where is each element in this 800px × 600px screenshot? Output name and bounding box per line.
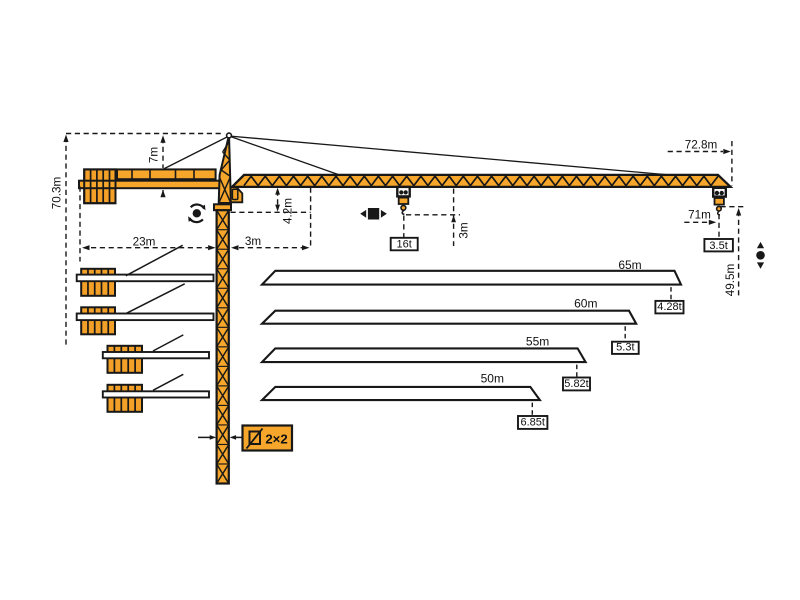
svg-text:3m: 3m (458, 222, 471, 238)
svg-text:4.28t: 4.28t (657, 301, 681, 313)
svg-text:71m: 71m (688, 209, 711, 222)
svg-text:72.8m: 72.8m (685, 138, 717, 151)
svg-text:50m: 50m (481, 372, 504, 386)
svg-text:3m: 3m (245, 235, 261, 248)
svg-text:5.3t: 5.3t (616, 342, 634, 354)
svg-text:7m: 7m (148, 147, 161, 163)
svg-text:2×2: 2×2 (265, 431, 287, 446)
svg-text:6.85t: 6.85t (520, 417, 544, 429)
svg-text:16t: 16t (397, 239, 412, 251)
svg-text:55m: 55m (526, 334, 549, 348)
svg-text:4.2m: 4.2m (282, 198, 295, 224)
svg-text:65m: 65m (618, 258, 641, 272)
svg-text:49.5m: 49.5m (724, 264, 737, 296)
svg-text:3.5t: 3.5t (709, 240, 727, 252)
svg-text:23m: 23m (133, 236, 156, 249)
svg-text:60m: 60m (574, 296, 597, 310)
svg-text:5.82t: 5.82t (564, 378, 588, 390)
svg-text:70.3m: 70.3m (51, 177, 64, 209)
